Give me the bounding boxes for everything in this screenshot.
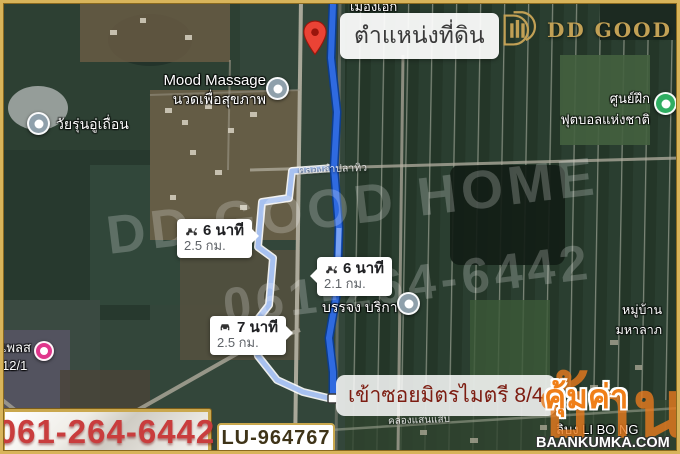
bubble-tail [302,268,318,284]
phone-number-box: 061-264-6442 [2,409,211,454]
poi-subname: 12/1 [2,358,31,373]
brand-logo-text: DD GOOD HOME [547,18,680,42]
bubble-tail [251,228,267,244]
route-distance: 2.5 กม. [184,239,244,254]
poi-subname: นวดเพื่อสุขภาพ [148,89,266,111]
poi-name: เพลส [2,337,31,358]
banjong-poi-icon [397,292,420,315]
poi-subname: ฟุตบอลแห่งชาติ [560,109,650,130]
listing-code-box: LU-964767 [217,423,335,453]
scooter-icon [184,224,199,237]
garage-poi-icon [27,112,50,135]
phone-number: 061-264-6442 [0,413,215,451]
poi-name: Mood Massage [148,72,266,89]
route-bubble-2: 6 นาที 2.1 กม. [317,257,392,296]
poi-mood-massage: Mood Massage นวดเพื่อสุขภาพ [148,72,266,111]
poi-subname: มหาลาภ [600,320,662,340]
poi-banjong: บรรจง บริการ [322,297,405,319]
route-distance: 2.5 กม. [217,336,278,351]
site-watermark-domain: BAANKUMKA.COM [536,435,670,451]
car-icon [217,321,233,334]
canal-label-top: คลองลำปลาทิว [298,159,368,178]
location-pin-icon [302,20,328,56]
route-bubble-3: 7 นาที 2.5 กม. [210,316,286,355]
listing-map-image: DD GOOD HOME 061-264-6442 เมืองเอก ตำแหน… [0,0,680,454]
poi-football-center: ศูนย์ฝึก ฟุตบอลแห่งชาติ [560,88,650,130]
poi-place: เพลส 12/1 [2,337,31,373]
land-location-label: ตำแหน่งที่ดิน [340,13,499,59]
route-duration: 6 นาที [343,260,384,277]
route-duration: 7 นาที [237,319,278,336]
lodging-poi-icon [34,341,54,361]
site-watermark: บ้าน คุ้มค่า BAANKUMKA.COM [530,354,680,454]
brand-monogram-icon [495,10,541,50]
route-duration: 6 นาที [203,222,244,239]
soi-entry-label: เข้าซอยมิตรไมตรี 8/4 [336,375,556,416]
site-watermark-accent: คุ้มค่า [544,370,628,423]
poi-name: ศูนย์ฝึก [560,88,650,109]
route-bubble-1: 6 นาที 2.5 กม. [177,219,252,258]
route-distance: 2.1 กม. [324,277,384,292]
listing-code: LU-964767 [221,427,330,450]
massage-poi-icon [266,77,289,100]
scooter-icon [324,262,339,275]
poi-name: หมู่บ้าน [600,300,662,320]
poi-village: หมู่บ้าน มหาลาภ [600,300,662,340]
brand-logo: DD GOOD HOME [495,10,680,50]
poi-garage: วัยรุ่นอู่เถื่อน [56,114,129,136]
bubble-tail [285,325,301,341]
football-poi-icon [654,92,677,115]
